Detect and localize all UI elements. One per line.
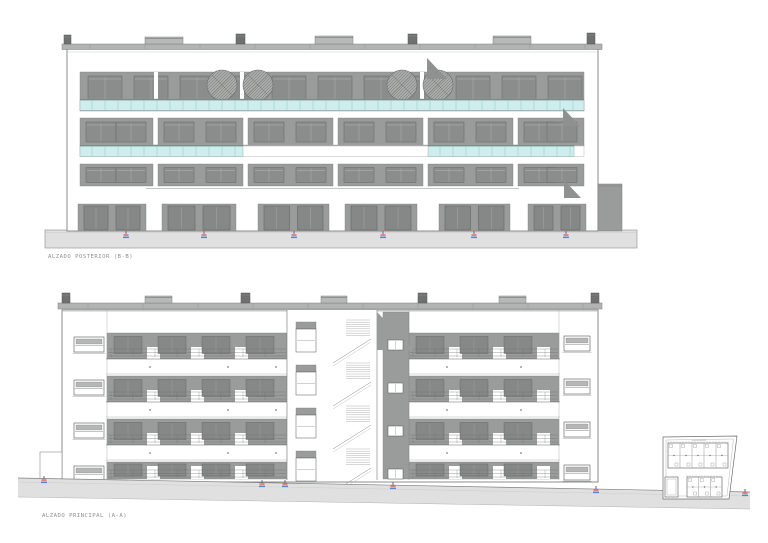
plan-annotation (692, 440, 706, 441)
elevation-drawing: ALZADO POSTERIOR (B-B) ALZADO PRINCIPAL … (0, 0, 768, 543)
key-plan (663, 436, 737, 499)
plan-lower-block (687, 475, 722, 497)
plan-small-block (665, 477, 678, 497)
side-annex (598, 184, 622, 231)
drawing-sheet: ALZADO POSTERIOR (B-B) ALZADO PRINCIPAL … (0, 0, 768, 543)
left-boundary-step (40, 452, 62, 482)
right-wing-balconies (408, 310, 560, 480)
elevation-posterior (45, 33, 637, 248)
third-floor-parapet (80, 145, 584, 157)
ground-strip-posterior (45, 230, 637, 248)
elevation-principal (18, 293, 750, 509)
stair-tower (287, 310, 377, 495)
plan-main-block (668, 441, 728, 468)
label-posterior: ALZADO POSTERIOR (B-B) (48, 254, 133, 260)
attic-balustrade (80, 99, 584, 111)
roof-chimneys (64, 33, 595, 44)
roof-chimneys (62, 293, 599, 303)
label-principal: ALZADO PRINCIPAL (A-A) (42, 513, 127, 519)
ground-strip-principal (18, 478, 750, 509)
left-wing-balconies (106, 310, 288, 480)
